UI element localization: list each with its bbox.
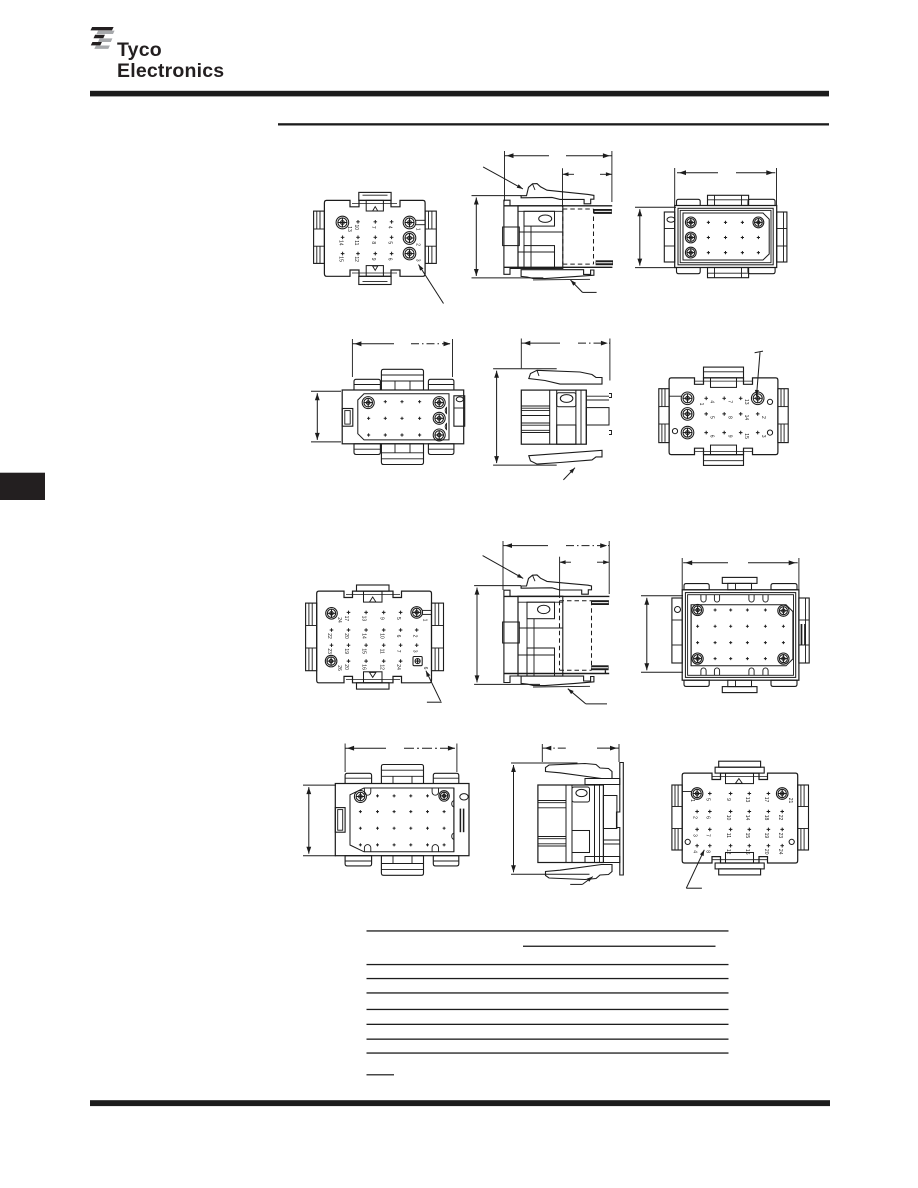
svg-text:1: 1 (689, 799, 695, 802)
svg-text:5: 5 (709, 416, 715, 419)
svg-text:12: 12 (353, 256, 359, 262)
svg-text:7: 7 (727, 400, 733, 403)
svg-text:6: 6 (422, 667, 428, 670)
svg-text:5: 5 (704, 798, 710, 801)
svg-text:5: 5 (386, 241, 392, 244)
svg-text:11: 11 (725, 833, 731, 838)
svg-text:20: 20 (343, 664, 349, 670)
svg-text:26: 26 (336, 665, 342, 671)
svg-text:20: 20 (763, 849, 769, 855)
svg-text:14: 14 (744, 815, 750, 821)
svg-text:5: 5 (395, 617, 401, 620)
svg-text:19: 19 (343, 648, 349, 654)
svg-text:6: 6 (395, 635, 401, 638)
svg-text:17: 17 (343, 616, 349, 622)
svg-text:3: 3 (411, 650, 417, 653)
svg-text:6: 6 (386, 258, 392, 261)
svg-text:2: 2 (692, 816, 698, 819)
svg-text:22: 22 (777, 815, 783, 821)
svg-text:14: 14 (361, 633, 367, 639)
svg-text:8: 8 (727, 416, 733, 419)
svg-text:16: 16 (744, 849, 750, 855)
svg-text:13: 13 (346, 226, 352, 232)
svg-text:3: 3 (414, 259, 420, 262)
svg-text:8: 8 (370, 241, 376, 244)
svg-text:Electronics: Electronics (117, 60, 224, 82)
svg-text:6: 6 (704, 816, 710, 819)
svg-text:14: 14 (743, 415, 749, 421)
svg-text:22: 22 (326, 633, 332, 639)
svg-text:15: 15 (743, 433, 749, 439)
svg-text:12: 12 (725, 849, 731, 855)
svg-text:9: 9 (370, 258, 376, 261)
svg-text:2: 2 (760, 416, 766, 419)
svg-text:15: 15 (337, 256, 343, 262)
svg-text:4: 4 (386, 226, 392, 229)
svg-text:24: 24 (395, 664, 401, 670)
svg-text:2: 2 (411, 635, 417, 638)
svg-text:24: 24 (777, 849, 783, 855)
svg-text:14: 14 (337, 240, 343, 246)
svg-text:7: 7 (395, 650, 401, 653)
svg-text:4: 4 (692, 850, 698, 853)
svg-text:10: 10 (353, 225, 359, 231)
svg-text:19: 19 (763, 833, 769, 839)
svg-text:13: 13 (361, 616, 367, 622)
svg-text:17: 17 (763, 797, 769, 803)
svg-text:21: 21 (787, 798, 793, 804)
svg-text:7: 7 (370, 226, 376, 229)
svg-text:3: 3 (692, 834, 698, 837)
svg-text:23: 23 (326, 648, 332, 654)
svg-text:13: 13 (743, 399, 749, 405)
svg-text:23: 23 (777, 833, 783, 839)
svg-text:10: 10 (725, 815, 731, 821)
svg-text:7: 7 (704, 834, 710, 837)
svg-text:18: 18 (763, 815, 769, 821)
svg-text:15: 15 (361, 648, 367, 654)
svg-text:9: 9 (378, 617, 384, 620)
svg-text:9: 9 (727, 435, 733, 438)
svg-text:11: 11 (378, 649, 384, 654)
svg-text:15: 15 (744, 833, 750, 839)
svg-text:4: 4 (709, 400, 715, 403)
svg-text:6: 6 (709, 435, 715, 438)
svg-text:1: 1 (414, 228, 420, 231)
svg-text:3: 3 (760, 435, 766, 438)
svg-text:10: 10 (378, 633, 384, 639)
svg-text:12: 12 (378, 664, 384, 670)
svg-text:1: 1 (422, 619, 428, 622)
svg-text:13: 13 (744, 797, 750, 803)
svg-text:11: 11 (353, 240, 359, 245)
svg-text:24: 24 (336, 617, 342, 623)
svg-text:Tyco: Tyco (117, 39, 162, 61)
svg-text:1: 1 (698, 403, 704, 406)
svg-text:9: 9 (725, 798, 731, 801)
svg-text:8: 8 (704, 850, 710, 853)
svg-text:20: 20 (343, 633, 349, 639)
svg-text:2: 2 (414, 243, 420, 246)
svg-text:16: 16 (361, 664, 367, 670)
